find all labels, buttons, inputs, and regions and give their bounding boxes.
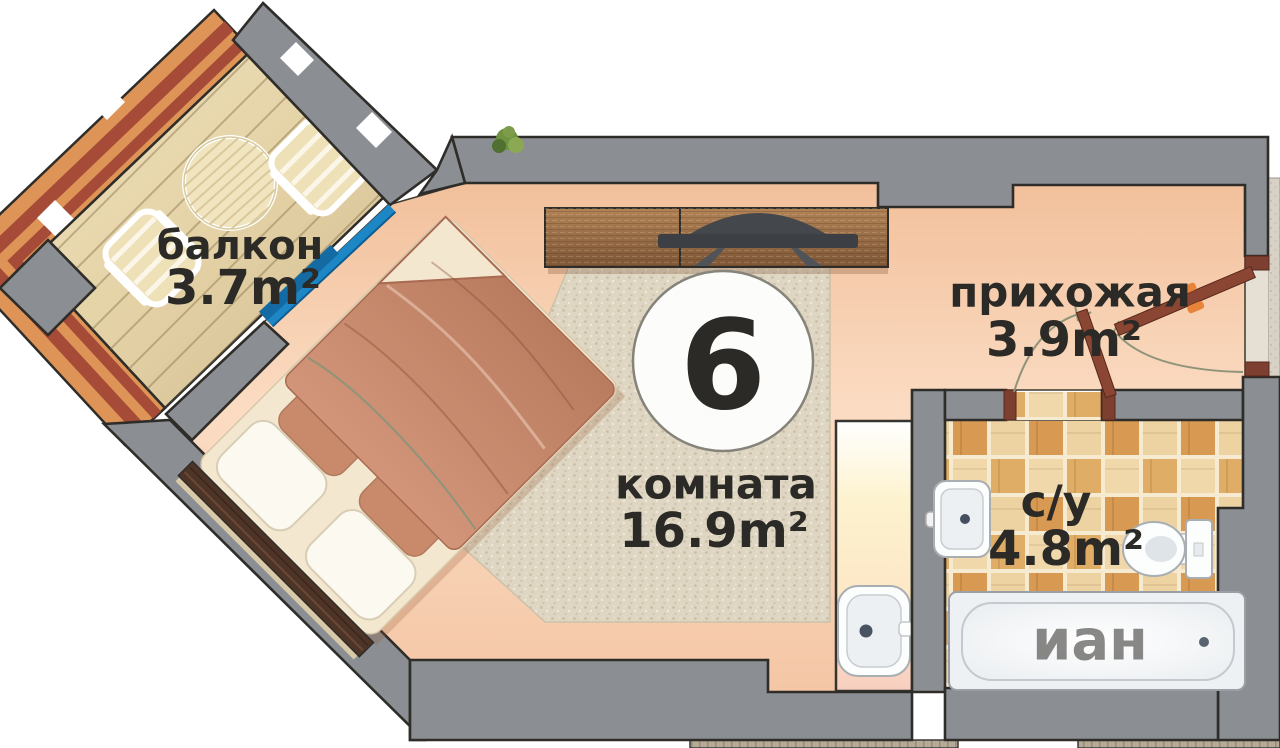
wall-bathroom-top-right <box>1102 390 1243 420</box>
wall-bathroom-top-left <box>945 390 1006 420</box>
wall-bottom-right <box>945 688 1218 740</box>
bathtub: иан <box>949 592 1245 690</box>
toilet-bowl-inner <box>1145 536 1177 562</box>
bathroom-sink <box>926 481 990 557</box>
label-hallway-name: прихожая <box>949 268 1191 317</box>
floor-plan-canvas: 6 иан <box>0 0 1280 748</box>
watermark: иан <box>1032 609 1148 674</box>
balcony-table <box>184 137 276 229</box>
drain-dot <box>860 625 873 638</box>
niche-room <box>836 421 913 691</box>
label-room-area: 16.9m² <box>619 503 808 559</box>
apartment-number-badge: 6 <box>633 271 813 451</box>
label-bathroom-name: с/у <box>1021 477 1092 528</box>
label-room-name: комната <box>615 460 817 509</box>
sink-drain <box>960 514 970 524</box>
tv-stand <box>545 208 888 274</box>
floor-plan: 6 иан <box>0 0 1280 748</box>
toilet-flush-button <box>1194 543 1203 556</box>
niche-toilet <box>838 586 913 676</box>
label-balcony-area: 3.7m² <box>165 260 321 316</box>
door-jamb <box>1245 362 1269 376</box>
bathroom-doorway-floor <box>1008 392 1102 420</box>
door-jamb <box>1004 390 1016 420</box>
label-hallway-area: 3.9m² <box>986 312 1142 368</box>
bathtub-drain <box>1199 637 1209 647</box>
label-bathroom-area: 4.8m² <box>988 521 1144 577</box>
apartment-number: 6 <box>680 294 766 438</box>
